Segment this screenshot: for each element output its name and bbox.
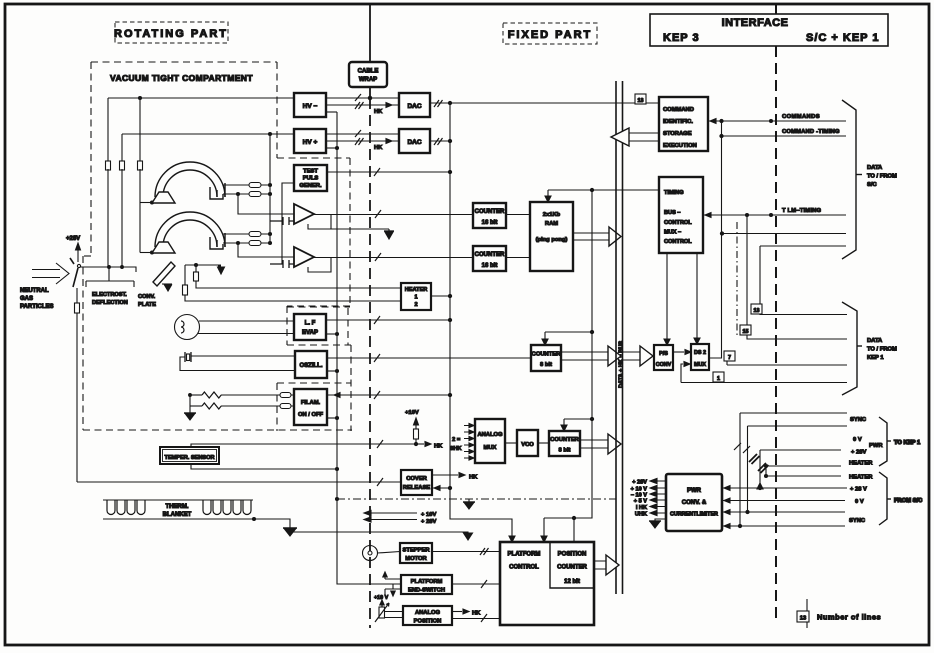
- svg-text:DAC: DAC: [407, 139, 421, 146]
- svg-text:+ 28V: + 28V: [632, 480, 647, 486]
- svg-text:HK: HK: [469, 475, 478, 481]
- svg-text:CONV. &: CONV. &: [682, 500, 707, 506]
- svg-text:CONTROL: CONTROL: [664, 220, 692, 226]
- svg-text:SYNC: SYNC: [849, 518, 866, 524]
- svg-text:PWR: PWR: [869, 443, 883, 449]
- svg-text:COUNTER: COUNTER: [475, 209, 505, 215]
- svg-text:THERM.: THERM.: [166, 504, 189, 510]
- svg-text:S/C + KEP 1: S/C + KEP 1: [806, 32, 879, 44]
- svg-text:I HK: I HK: [636, 505, 647, 511]
- svg-text:COUNTER: COUNTER: [475, 252, 505, 258]
- svg-text:INTERFACE: INTERFACE: [722, 17, 789, 29]
- svg-text:CONV: CONV: [656, 362, 672, 368]
- svg-text:+ 28V: + 28V: [851, 450, 866, 456]
- svg-text:MUX –: MUX –: [664, 230, 681, 236]
- svg-text:15: 15: [743, 329, 749, 335]
- svg-text:CONV.: CONV.: [138, 294, 156, 300]
- svg-text:TEMPER. SENSOR: TEMPER. SENSOR: [164, 455, 214, 461]
- svg-text:RAM: RAM: [545, 221, 558, 227]
- svg-text:ROTATING PART: ROTATING PART: [114, 28, 228, 40]
- svg-text:HEATER: HEATER: [849, 475, 873, 481]
- svg-text:FIXED PART: FIXED PART: [508, 29, 593, 41]
- svg-text:DATA + HK – BUS: DATA + HK – BUS: [619, 341, 625, 388]
- svg-text:+ 5 V: + 5 V: [634, 499, 647, 505]
- svg-text:(ping pong): (ping pong): [536, 237, 568, 243]
- svg-text:PARTICLES: PARTICLES: [20, 304, 54, 310]
- svg-text:1: 1: [414, 295, 417, 301]
- svg-text:+10V: +10V: [405, 410, 419, 416]
- svg-text:DEFLECTION: DEFLECTION: [92, 300, 128, 306]
- svg-text:+ 28V: + 28V: [421, 519, 436, 525]
- svg-text:TO KEP 1: TO KEP 1: [894, 440, 921, 446]
- svg-text:+ 10V: + 10V: [421, 512, 436, 518]
- svg-text:L. F: L. F: [305, 321, 316, 327]
- svg-text:8HK: 8HK: [450, 446, 462, 452]
- svg-text:COUNTER: COUNTER: [532, 352, 561, 358]
- svg-text:WRAP: WRAP: [359, 77, 377, 83]
- svg-text:GAS: GAS: [20, 296, 33, 302]
- svg-text:12 bit: 12 bit: [564, 579, 580, 585]
- svg-text:T LM–TIMING: T LM–TIMING: [782, 208, 822, 214]
- svg-text:COUNTER: COUNTER: [557, 565, 587, 571]
- svg-text:CONTROL: CONTROL: [664, 239, 692, 245]
- svg-text:COMMANDS: COMMANDS: [782, 114, 820, 120]
- svg-text:EVAP: EVAP: [302, 330, 318, 336]
- svg-text:HEATER: HEATER: [849, 461, 873, 467]
- svg-text:PULS: PULS: [303, 176, 319, 182]
- svg-text:STEPPER: STEPPER: [402, 548, 430, 554]
- svg-text:GENER.: GENER.: [299, 183, 322, 189]
- svg-text:COMMAND: COMMAND: [663, 107, 694, 113]
- svg-text:KEP 3: KEP 3: [663, 32, 700, 44]
- svg-text:VACUUM TIGHT COMPARTMENT: VACUUM TIGHT COMPARTMENT: [110, 73, 253, 83]
- svg-text:BUS –: BUS –: [664, 210, 680, 216]
- svg-text:ON / OFF: ON / OFF: [298, 412, 324, 418]
- svg-text:PLATE: PLATE: [138, 302, 156, 308]
- svg-text:+10 V: +10 V: [374, 595, 389, 601]
- svg-text:HV +: HV +: [303, 139, 318, 146]
- svg-text:0 V: 0 V: [853, 437, 862, 443]
- svg-text:END-SWITCH: END-SWITCH: [408, 588, 445, 594]
- svg-text:DATA: DATA: [867, 165, 883, 171]
- svg-text:HK: HK: [374, 145, 383, 151]
- svg-text:HEATER: HEATER: [405, 287, 428, 293]
- svg-text:KEP 1: KEP 1: [867, 355, 884, 361]
- svg-text:FILAM.: FILAM.: [301, 400, 321, 406]
- svg-text:2x1Kb: 2x1Kb: [543, 212, 561, 218]
- svg-text:PLATFORM: PLATFORM: [411, 579, 443, 585]
- svg-text:8 bit: 8 bit: [559, 448, 571, 454]
- svg-text:OSZILL.: OSZILL.: [300, 363, 323, 369]
- svg-text:DAC: DAC: [407, 103, 421, 110]
- svg-text:COMMAND -TIMING: COMMAND -TIMING: [782, 129, 840, 135]
- svg-text:UHK: UHK: [635, 512, 647, 518]
- svg-text:DATA: DATA: [867, 338, 883, 344]
- svg-text:7: 7: [728, 355, 731, 361]
- svg-text:CONTROL: CONTROL: [509, 565, 539, 571]
- svg-text:PLATFORM: PLATFORM: [508, 552, 541, 558]
- svg-text:MOTOR: MOTOR: [405, 556, 427, 562]
- svg-text:MUX: MUX: [484, 445, 497, 451]
- svg-text:EXECUTION: EXECUTION: [663, 143, 697, 149]
- svg-text:2 =: 2 =: [452, 437, 461, 443]
- svg-text:16 bit: 16 bit: [482, 263, 498, 269]
- svg-text:ANALOG: ANALOG: [477, 432, 503, 438]
- svg-text:BLANKET: BLANKET: [163, 512, 192, 518]
- svg-text:CABLE: CABLE: [358, 69, 379, 75]
- svg-text:POSITION: POSITION: [558, 552, 587, 558]
- svg-text:FROM S/C: FROM S/C: [894, 498, 923, 504]
- svg-text:SYNC: SYNC: [850, 417, 867, 423]
- svg-text:RELEASE: RELEASE: [403, 485, 431, 491]
- svg-text:DS 2: DS 2: [694, 350, 706, 356]
- svg-text:+28V: +28V: [66, 236, 80, 242]
- svg-text:+ 28 V: + 28 V: [850, 487, 867, 493]
- svg-text:S/C: S/C: [867, 182, 877, 188]
- svg-text:IDENTIFIC.: IDENTIFIC.: [663, 119, 693, 125]
- svg-text:HK: HK: [434, 444, 443, 450]
- svg-text:NEUTRAL: NEUTRAL: [20, 288, 49, 294]
- svg-text:HK: HK: [374, 109, 383, 115]
- svg-text:Number of lines: Number of lines: [817, 613, 881, 622]
- svg-text:TEST: TEST: [303, 169, 318, 175]
- svg-text:COUNTER: COUNTER: [550, 437, 579, 443]
- svg-text:ELECTROST.: ELECTROST.: [92, 292, 127, 298]
- svg-text:PWR: PWR: [687, 488, 702, 494]
- svg-text:MUX: MUX: [694, 362, 706, 368]
- svg-text:13: 13: [800, 616, 807, 622]
- svg-text:TO / FROM: TO / FROM: [867, 174, 897, 180]
- svg-text:2: 2: [414, 302, 417, 308]
- svg-text:1: 1: [717, 376, 720, 382]
- svg-text:ANALOG: ANALOG: [415, 610, 441, 616]
- svg-text:TIMING: TIMING: [664, 190, 684, 196]
- svg-text:8 bit: 8 bit: [540, 362, 552, 368]
- svg-text:P/S: P/S: [659, 351, 668, 357]
- svg-text:0 V: 0 V: [855, 499, 864, 505]
- svg-text:CURRENTLIMITER: CURRENTLIMITER: [670, 512, 718, 518]
- svg-text:HK: HK: [472, 611, 481, 617]
- svg-text:13: 13: [754, 308, 760, 314]
- svg-text:COVER: COVER: [406, 476, 427, 482]
- svg-text:VCO: VCO: [521, 442, 534, 448]
- svg-text:13: 13: [638, 98, 644, 104]
- svg-text:16 bit: 16 bit: [482, 220, 498, 226]
- svg-text:TO / FROM: TO / FROM: [867, 347, 897, 353]
- svg-text:STORAGE: STORAGE: [663, 131, 692, 137]
- svg-text:HV −: HV −: [303, 103, 318, 110]
- svg-text:POSITION: POSITION: [414, 619, 442, 625]
